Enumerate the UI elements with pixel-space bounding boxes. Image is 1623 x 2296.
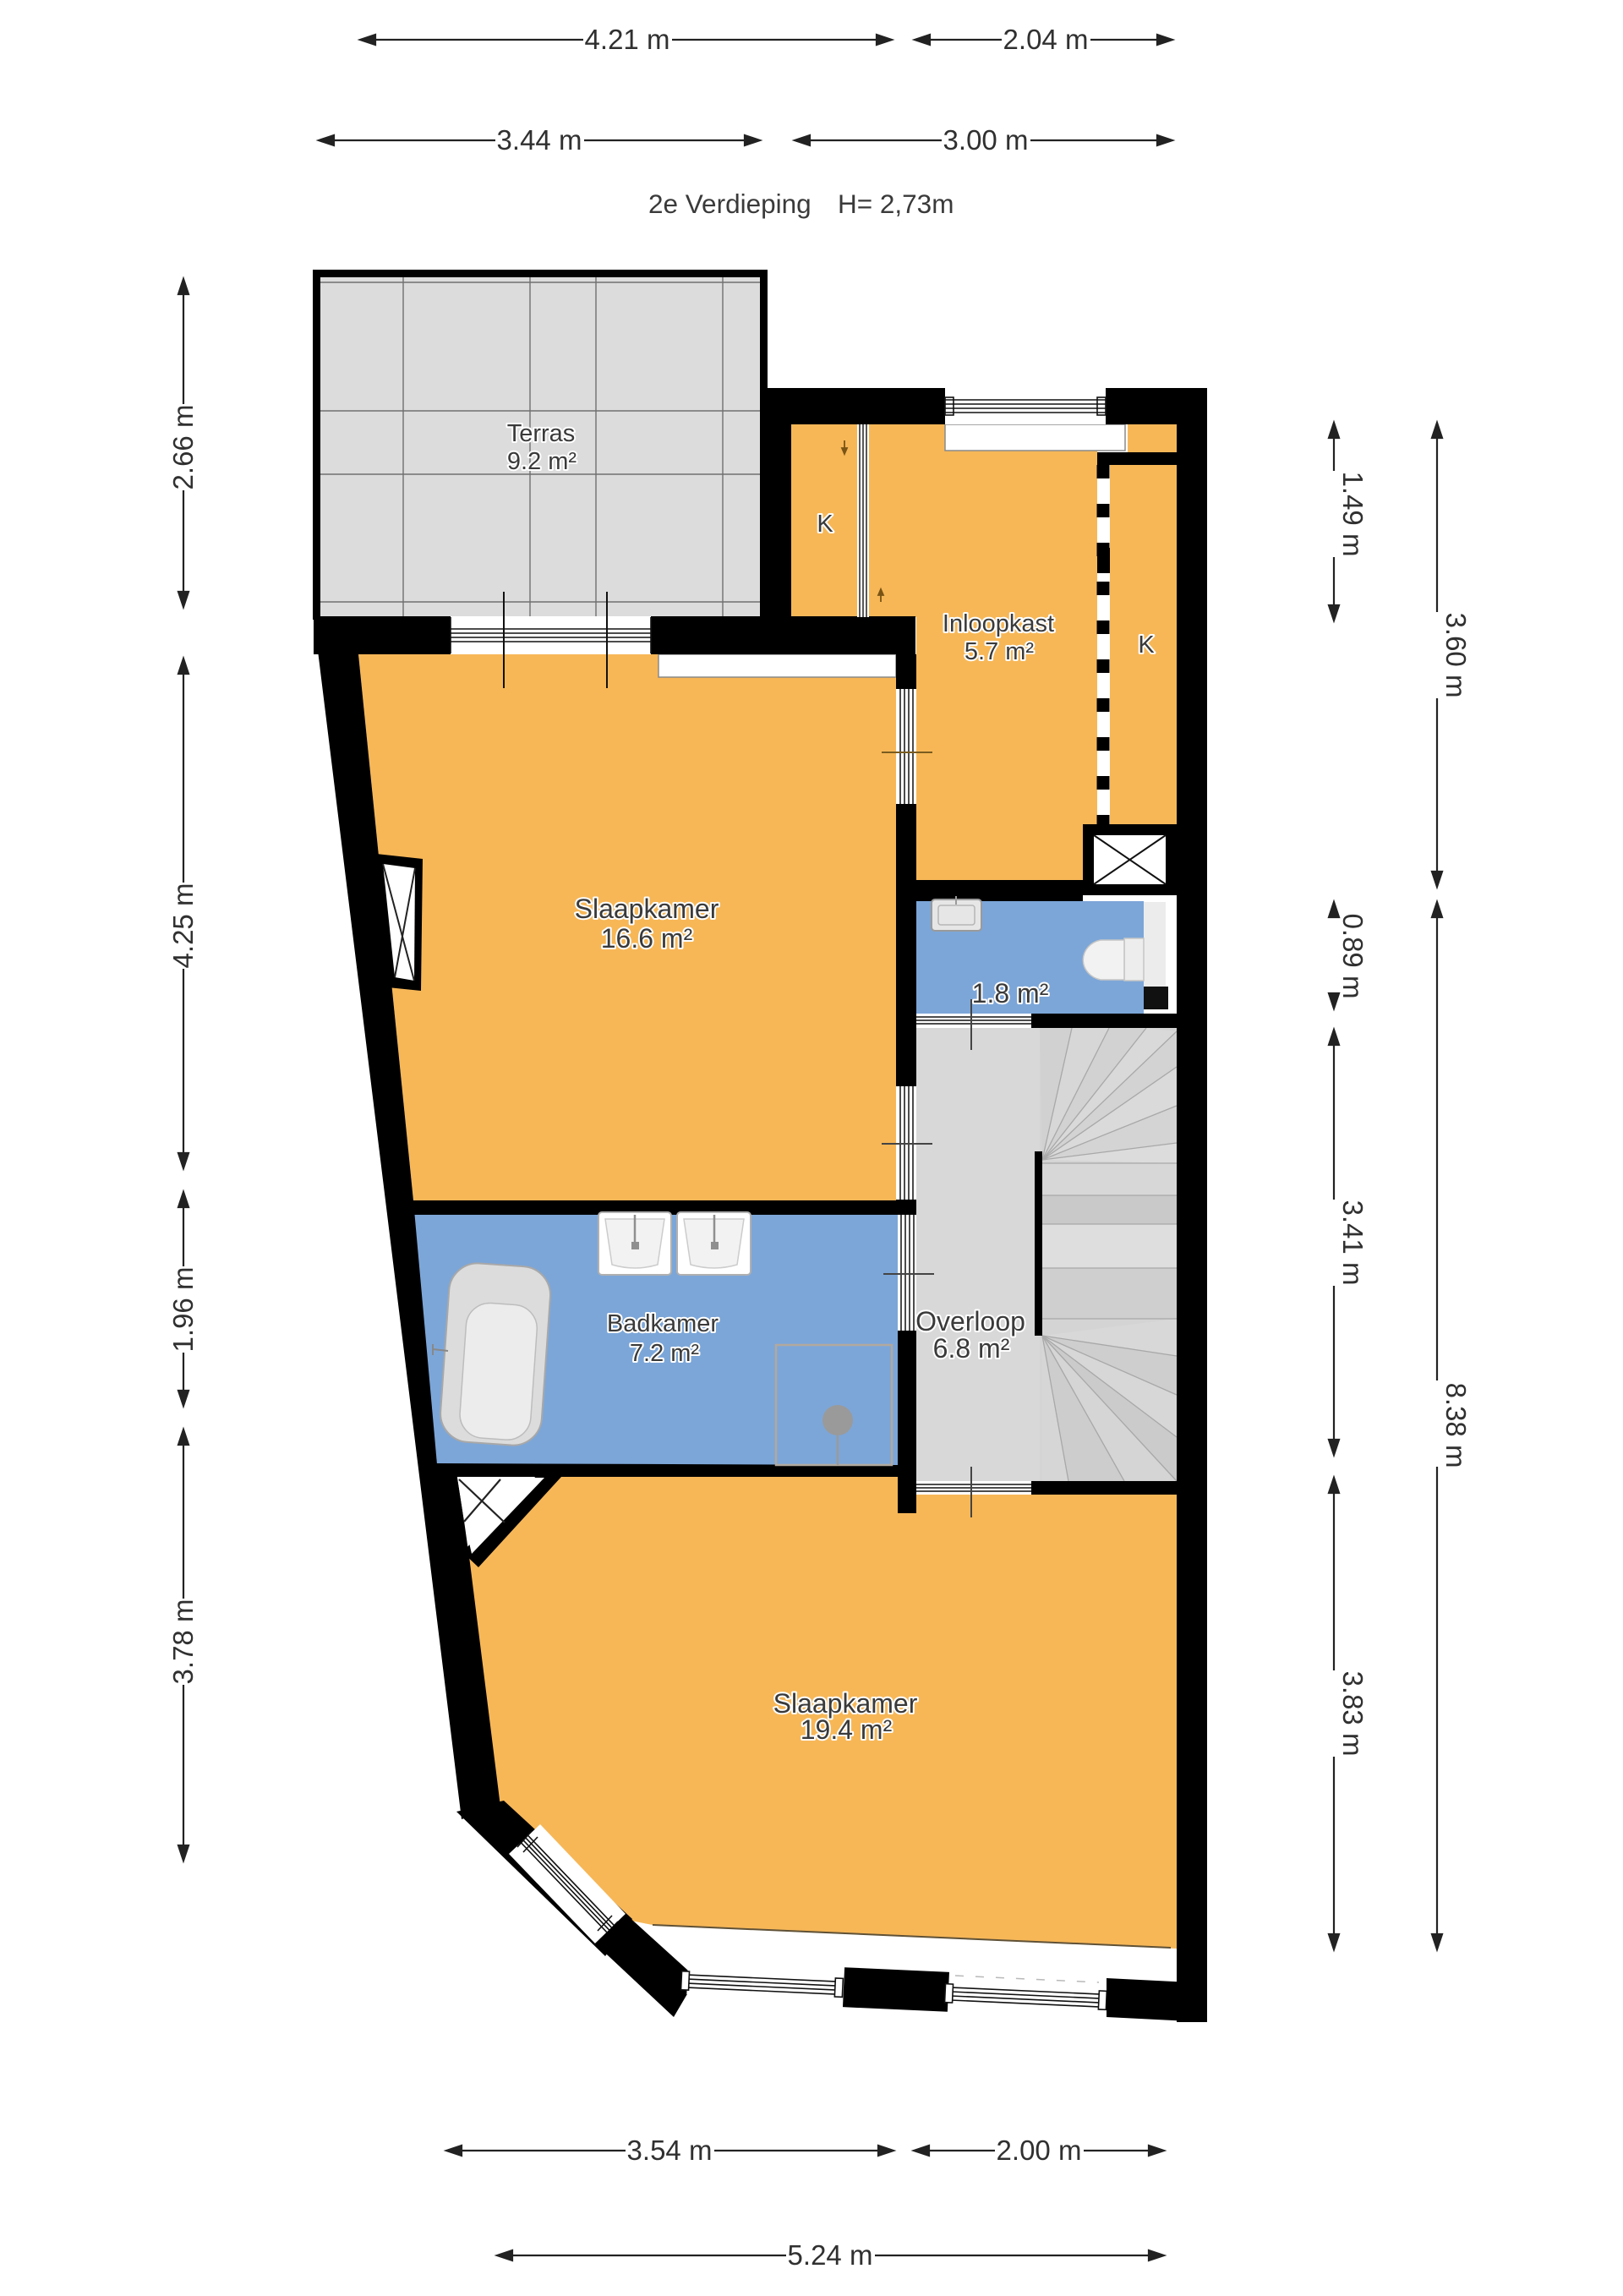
svg-text:H= 2,73m: H= 2,73m	[838, 189, 954, 219]
svg-text:16.6 m²: 16.6 m²	[601, 923, 693, 954]
svg-text:3.78 m: 3.78 m	[167, 1599, 199, 1685]
svg-text:Inloopkast: Inloopkast	[943, 610, 1054, 637]
svg-text:0.89 m: 0.89 m	[1337, 914, 1369, 999]
svg-text:7.2 m²: 7.2 m²	[630, 1340, 700, 1367]
svg-text:2.66 m: 2.66 m	[167, 405, 199, 490]
svg-text:3.41 m: 3.41 m	[1337, 1200, 1369, 1286]
svg-text:3.44 m: 3.44 m	[497, 124, 582, 156]
svg-text:2.00 m: 2.00 m	[997, 2135, 1082, 2166]
svg-text:K: K	[817, 511, 833, 538]
svg-text:Slaapkamer: Slaapkamer	[575, 894, 719, 924]
svg-text:1.96 m: 1.96 m	[167, 1267, 199, 1353]
svg-text:2.04 m: 2.04 m	[1003, 24, 1089, 55]
svg-text:4.25 m: 4.25 m	[167, 883, 199, 969]
svg-text:3.00 m: 3.00 m	[943, 124, 1029, 156]
svg-text:6.8 m²: 6.8 m²	[933, 1333, 1010, 1364]
svg-text:3.54 m: 3.54 m	[627, 2135, 713, 2166]
svg-text:K: K	[1138, 631, 1155, 659]
svg-text:Terras: Terras	[507, 420, 576, 447]
svg-text:5.7 m²: 5.7 m²	[965, 638, 1035, 665]
svg-text:9.2 m²: 9.2 m²	[507, 448, 577, 475]
svg-text:4.21 m: 4.21 m	[585, 24, 670, 55]
svg-text:3.60 m: 3.60 m	[1440, 613, 1472, 698]
svg-text:Overloop: Overloop	[915, 1306, 1025, 1337]
svg-text:5.24 m: 5.24 m	[788, 2239, 873, 2271]
svg-text:Badkamer: Badkamer	[607, 1310, 719, 1337]
svg-text:1.49 m: 1.49 m	[1337, 472, 1369, 557]
svg-text:19.4 m²: 19.4 m²	[801, 1714, 893, 1745]
svg-text:3.83 m: 3.83 m	[1337, 1671, 1369, 1757]
svg-text:2e Verdieping: 2e Verdieping	[648, 189, 811, 219]
svg-text:8.38 m: 8.38 m	[1440, 1383, 1472, 1468]
svg-text:1.8 m²: 1.8 m²	[972, 978, 1049, 1009]
